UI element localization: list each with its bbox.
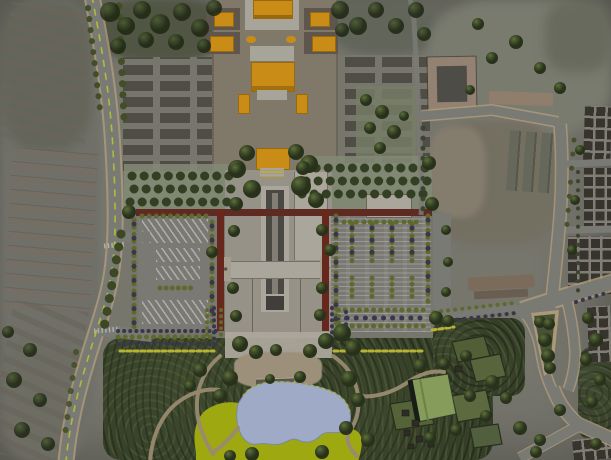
residential-barracks <box>4 148 98 312</box>
block-gap-road1 <box>566 162 611 164</box>
pond-weir <box>256 377 294 385</box>
brown-building-2 <box>474 289 528 300</box>
canopy-topcenter-right <box>335 0 435 54</box>
canopy-topleft <box>98 0 223 60</box>
aerial-field <box>428 126 486 218</box>
car-dot <box>564 380 573 387</box>
pavilion-roof-sw <box>210 36 234 52</box>
aerial-topright-dark <box>545 0 611 72</box>
second-hall-terrace <box>257 90 287 100</box>
temple-main-hall-roof <box>253 0 293 19</box>
coach-stalls-south <box>142 300 208 324</box>
city-block-a <box>583 106 611 163</box>
red-wall-west-court <box>217 209 224 331</box>
second-hall-roof <box>251 62 295 92</box>
plaza-oval-west <box>246 36 256 43</box>
coach-stalls-north <box>142 219 208 243</box>
temple-platform-mid <box>250 46 294 61</box>
pavilion-roof-se <box>312 36 336 52</box>
gate-bar-east <box>296 94 308 114</box>
residential-rows-north <box>0 2 99 145</box>
coach-stalls-center1 <box>156 248 200 262</box>
car-court-east <box>331 212 431 332</box>
woodland-ne <box>433 318 525 396</box>
city-block-e <box>572 436 611 460</box>
east-service-drive <box>433 213 451 316</box>
city-block-c <box>568 236 611 294</box>
south-east-lane <box>566 297 575 390</box>
garden-east <box>356 86 416 158</box>
city-block-b <box>584 168 611 232</box>
south-west-lane <box>522 310 553 392</box>
cross-path <box>225 261 332 279</box>
red-wall-east-court <box>322 209 329 331</box>
entrance-gate-steps <box>260 168 284 177</box>
coach-stalls-center2 <box>156 266 200 280</box>
gate-bar-west <box>238 94 250 114</box>
pavilion-roof-ne <box>310 12 330 27</box>
courtyard-building <box>428 57 477 112</box>
site-plan-map <box>0 0 611 460</box>
canal-basin <box>266 296 284 310</box>
factory-sheds <box>506 130 560 193</box>
red-wall-north <box>136 209 432 216</box>
junction-median <box>531 310 559 376</box>
entrance-gate <box>256 148 290 170</box>
junction-patch <box>515 301 557 321</box>
city-block-d <box>587 306 611 363</box>
plaza-oval-east <box>286 36 296 43</box>
long-bar-building <box>489 91 553 106</box>
pavilion-roof-nw <box>214 12 234 27</box>
